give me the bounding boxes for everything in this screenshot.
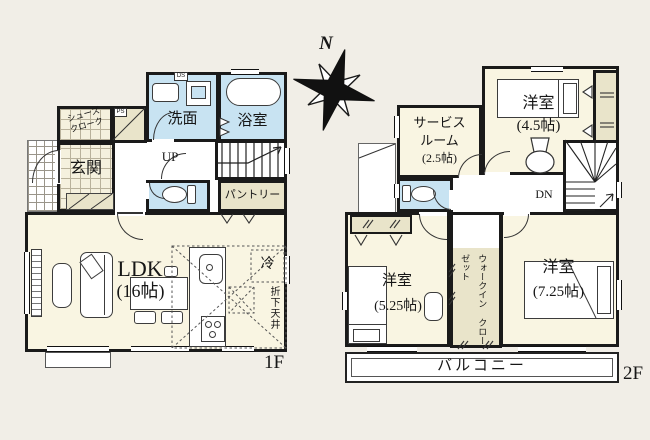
wic-label: ウォークイン クローゼット bbox=[456, 254, 490, 346]
balcony-label: バルコニー bbox=[345, 358, 619, 375]
ldk-size-label: (16帖) bbox=[93, 282, 188, 302]
ldk-name-label: LDK bbox=[95, 257, 185, 281]
floor-plan: DS PS bbox=[0, 0, 650, 440]
service-room-label: サービス ルーム bbox=[397, 114, 482, 150]
floor1-tag: 1F bbox=[252, 353, 296, 374]
stairs-1f-treads bbox=[218, 143, 281, 177]
stairs-up-label: UP bbox=[150, 150, 190, 164]
bathroom-label: 浴室 bbox=[218, 113, 287, 130]
bedroom-east-label: 洋室 bbox=[500, 259, 617, 277]
bedroom-east-size-label: (7.25帖) bbox=[500, 284, 617, 301]
bedroom-north-size-label: (4.5帖) bbox=[482, 118, 595, 135]
floor2-tag: 2F bbox=[616, 364, 650, 385]
washroom-label: 洗面 bbox=[146, 111, 219, 128]
stairs-down-label: DN bbox=[524, 188, 564, 201]
bedroom-north-label: 洋室 bbox=[482, 95, 595, 113]
dropped-ceiling-label: 折下天井 bbox=[266, 286, 281, 352]
stairs-2f-treads bbox=[565, 140, 616, 210]
fridge-label: 冷 bbox=[251, 257, 284, 272]
pantry-label: パントリー bbox=[218, 189, 287, 201]
compass-north-label: N bbox=[308, 34, 344, 55]
bedroom-west-label: 洋室 bbox=[345, 273, 449, 290]
entrance-label: 玄関 bbox=[57, 160, 115, 178]
bedroom-west-size-label: (5.25帖) bbox=[345, 299, 451, 314]
service-room-size-label: (2.5帖) bbox=[397, 152, 482, 165]
vase-icon bbox=[526, 138, 554, 173]
